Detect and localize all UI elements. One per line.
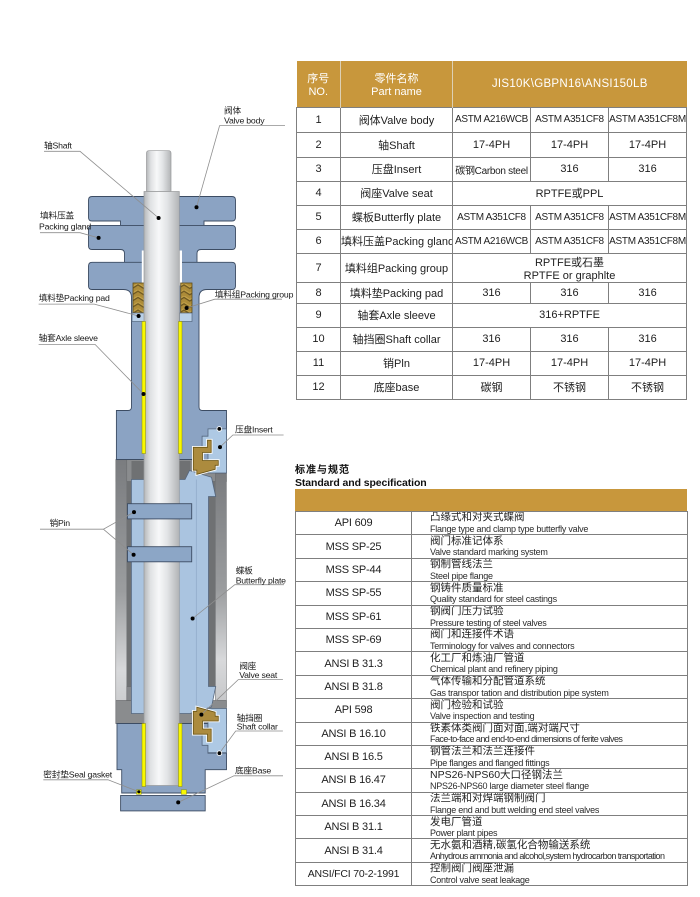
svg-text:Valve body: Valve body bbox=[224, 116, 265, 126]
svg-text:填料压盖: 填料压盖 bbox=[40, 210, 74, 221]
svg-text:轴套Axle sleeve: 轴套Axle sleeve bbox=[39, 332, 99, 343]
svg-text:填料组Packing group: 填料组Packing group bbox=[215, 289, 294, 300]
svg-text:压盘Insert: 压盘Insert bbox=[235, 423, 273, 434]
svg-text:蝶板: 蝶板 bbox=[236, 565, 253, 576]
svg-text:销Pin: 销Pin bbox=[50, 517, 71, 528]
svg-text:填料垫Packing pad: 填料垫Packing pad bbox=[39, 292, 110, 303]
svg-text:Shaft collar: Shaft collar bbox=[237, 722, 278, 732]
svg-text:底座Base: 底座Base bbox=[235, 765, 271, 776]
svg-text:密封垫Seal gasket: 密封垫Seal gasket bbox=[43, 769, 112, 780]
svg-text:Packing gland: Packing gland bbox=[39, 222, 91, 232]
svg-text:Butterfly plate: Butterfly plate bbox=[236, 576, 286, 586]
svg-text:阀体: 阀体 bbox=[224, 105, 241, 116]
svg-text:轴Shaft: 轴Shaft bbox=[44, 140, 73, 151]
svg-text:Valve seat: Valve seat bbox=[239, 670, 278, 680]
